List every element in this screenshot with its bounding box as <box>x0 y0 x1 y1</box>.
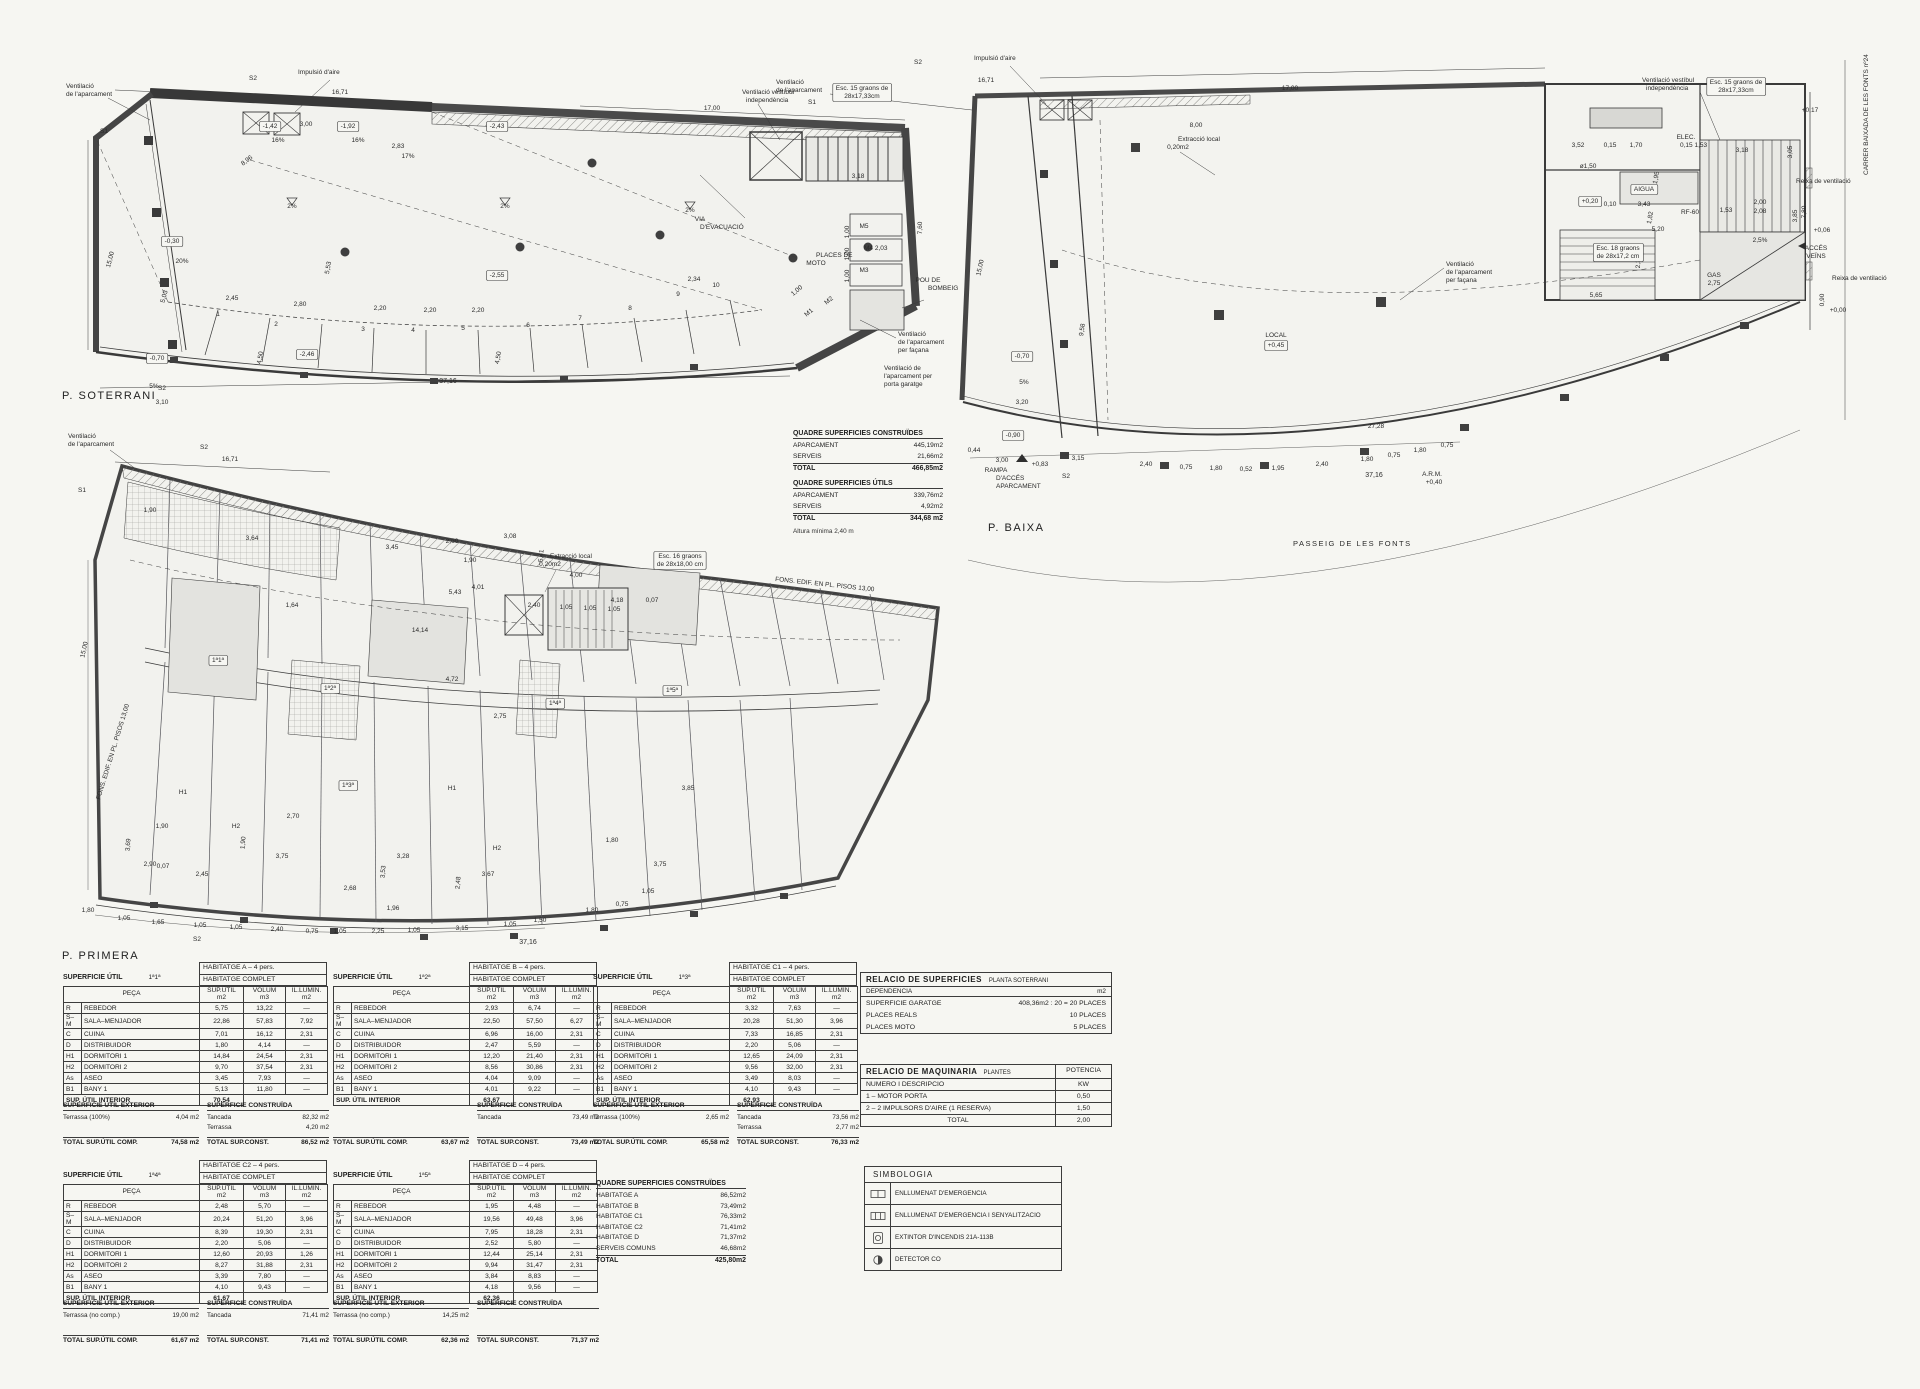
room-name: DISTRIBUIDOR <box>352 1040 470 1051</box>
annotation-text: 1,05 <box>504 921 517 928</box>
exterior-section: TOTAL SUP.ÚTIL COMP.63,67 m2 <box>333 1102 469 1146</box>
table-caption: SUPERFICIE ÚTIL1ª2ª <box>333 974 431 981</box>
annotation-text: 16,71 <box>978 77 995 84</box>
table-row: HABITATGE D71,37m2 <box>596 1233 746 1244</box>
room-code: R <box>64 1003 82 1014</box>
room-value: 7,93 <box>244 1073 286 1084</box>
table-row: H1DORMITORI 112,4425,142,31 <box>334 1249 598 1260</box>
room-name: SALA–MENJADOR <box>612 1014 730 1029</box>
room-value: 7,80 <box>244 1271 286 1282</box>
annotation-text: D'ACCÉS <box>996 473 1025 482</box>
room-value: — <box>556 1073 598 1084</box>
room-value: 4,10 <box>200 1282 244 1293</box>
annotation-text: 10 <box>712 282 720 289</box>
table-caption: SUPERFICIE ÚTIL1ª5ª <box>333 1172 431 1179</box>
exterior-section: SUPERFICIE ÚTIL EXTERIORTerrassa (100%)2… <box>593 1102 729 1146</box>
built-section: SUPERFICIE CONSTRUÏDATancada73,49 m2TOTA… <box>477 1102 599 1146</box>
annotation-text: 5,43 <box>449 589 462 596</box>
annotation-text: Ventilació <box>1446 261 1474 268</box>
annotation-text: 2 <box>274 321 278 328</box>
room-code: B1 <box>334 1084 352 1095</box>
column-header: PEÇA <box>334 987 470 1003</box>
caption-text: SUPERFICIE ÚTIL <box>333 1172 393 1179</box>
annotation-text: 1ª3ª <box>342 782 355 789</box>
annotation-text: 17,00 <box>704 105 721 112</box>
column-header: PEÇA <box>64 987 200 1003</box>
annotation-text: Ventilació vestíbul <box>1642 77 1695 84</box>
room-value: 7,95 <box>470 1227 514 1238</box>
annotation-text: 7 <box>578 315 582 322</box>
table-row: H1DORMITORI 114,8424,542,31 <box>64 1051 328 1062</box>
header-line1: PEÇA <box>336 991 467 998</box>
row-value: 86,52m2 <box>720 1191 746 1202</box>
annotation-text: 2,75 <box>1708 280 1721 287</box>
habitatge-complet: HABITATGE COMPLET <box>200 975 326 986</box>
habitatge-complet: HABITATGE COMPLET <box>730 975 856 986</box>
unit-id: 1ª2ª <box>419 974 431 981</box>
annotation-text: 1ª5ª <box>666 687 679 694</box>
annotation-text: de l'aparcament <box>1446 269 1492 276</box>
room-name: DORMITORI 1 <box>352 1051 470 1062</box>
table-caption: SUPERFICIE ÚTIL1ª3ª <box>593 974 691 981</box>
table-row: AsASEO3,848,83— <box>334 1271 598 1282</box>
annotation-text: 1,90 <box>239 836 247 850</box>
section-row: Terrassa (no comp.)19,00 m2 <box>63 1311 199 1321</box>
annotation-text: ACCÉS <box>1805 243 1828 252</box>
annotation-text: Ventilació <box>776 79 804 86</box>
table-row: S–MSALA–MENJADOR19,5649,483,96 <box>334 1212 598 1227</box>
title-subtext: PLANTA SOTERRANI <box>989 978 1048 984</box>
table-caption: SUPERFICIE ÚTIL1ª4ª <box>63 1172 161 1179</box>
annotation-text: 4 <box>411 327 415 334</box>
table-row: HABITATGE C271,41m2 <box>596 1223 746 1234</box>
table-row: HABITATGE A86,52m2 <box>596 1191 746 1202</box>
room-code: R <box>334 1201 352 1212</box>
room-value: 3,39 <box>200 1271 244 1282</box>
row-value: 339,76m2 <box>914 491 943 502</box>
row-value: 19,00 m2 <box>172 1311 199 1321</box>
annotation-text: H1 <box>179 789 188 796</box>
row-value: 0,50 <box>1055 1091 1111 1103</box>
table-row: APARCAMENT339,76m2 <box>793 491 943 502</box>
room-value: 2,31 <box>556 1029 598 1040</box>
header-row: PEÇASUP.ÚTILm2VOLUMm3IL.LUMIN.m2 <box>64 1185 328 1201</box>
annotation-text: 3,85 <box>1792 209 1799 222</box>
total-value: 344,68 m2 <box>910 515 943 522</box>
annotation-text: porta garatge <box>884 381 923 388</box>
column-header: SUP.ÚTILm2 <box>200 1185 244 1201</box>
annotation-text: BOMBEIG <box>928 285 958 292</box>
room-name: DORMITORI 1 <box>612 1051 730 1062</box>
room-value: 22,50 <box>470 1014 514 1029</box>
habitatge-name: HABITATGE D <box>473 1162 519 1169</box>
room-value: 3,96 <box>286 1212 328 1227</box>
column-header: PEÇA <box>334 1185 470 1201</box>
header-row: PEÇASUP.ÚTILm2VOLUMm3IL.LUMIN.m2 <box>64 987 328 1003</box>
room-name: CUINA <box>352 1227 470 1238</box>
table-row: B1BANY 14,189,56— <box>334 1282 598 1293</box>
annotation-text: 8,00 <box>1190 122 1203 129</box>
annotation-text: 0,07 <box>157 863 170 870</box>
room-name: REBEDOR <box>352 1201 470 1212</box>
row-label: PLACES MOTO <box>866 1024 915 1031</box>
annotation-text: GAS <box>1707 272 1721 279</box>
annotation-text: 3,53 <box>379 865 387 879</box>
row-label: APARCAMENT <box>793 441 838 452</box>
room-code: B1 <box>594 1084 612 1095</box>
annotation-text: 1,80 <box>82 907 95 914</box>
row-value: 71,41 m2 <box>302 1311 329 1321</box>
table-body: RREBEDOR2,936,74—S–MSALA–MENJADOR22,5057… <box>334 1003 598 1095</box>
annotation-text: 5% <box>1019 379 1029 386</box>
annotation-text: 2,70 <box>287 813 300 820</box>
annotation-text: 14,14 <box>412 627 429 634</box>
header-line1: PEÇA <box>66 991 197 998</box>
soterrani-area-tables: QUADRE SUPERFICIES CONSTRUÏDESAPARCAMENT… <box>793 430 943 535</box>
annotation-text: 1,90 <box>144 507 157 514</box>
room-value: 37,54 <box>244 1062 286 1073</box>
annotation-text: 2,25 <box>372 928 385 935</box>
annotation-text: 1,05 <box>584 605 597 612</box>
total-label: TOTAL SUP.CONST. <box>737 1139 799 1146</box>
room-value: 11,80 <box>244 1084 286 1095</box>
annotation-text: 1ª4ª <box>549 700 562 707</box>
room-value: 57,83 <box>244 1014 286 1029</box>
room-value: 7,01 <box>200 1029 244 1040</box>
title-text: RELACIO DE SUPERFICIES <box>866 975 982 984</box>
column-header: IL.LUMIN.m2 <box>286 987 328 1003</box>
habitatge-header: HABITATGE D – 4 pers.HABITATGE COMPLET <box>469 1160 597 1184</box>
table-row: CCUINA6,9616,002,31 <box>334 1029 598 1040</box>
room-name: DORMITORI 1 <box>352 1249 470 1260</box>
room-code: B1 <box>334 1282 352 1293</box>
header-row: PEÇASUP.ÚTILm2VOLUMm3IL.LUMIN.m2 <box>334 987 598 1003</box>
room-name: ASEO <box>82 1271 200 1282</box>
surface-table: PEÇASUP.ÚTILm2VOLUMm3IL.LUMIN.m2RREBEDOR… <box>593 986 858 1106</box>
room-name: REBEDOR <box>352 1003 470 1014</box>
header-row: PEÇASUP.ÚTILm2VOLUMm3IL.LUMIN.m2 <box>594 987 858 1003</box>
row-value: 408,36m2 : 20 = 20 PLACES <box>1019 1000 1106 1007</box>
row-value: 10 PLACES <box>1070 1012 1106 1019</box>
room-value: 2,31 <box>816 1062 858 1073</box>
annotation-text: 0,75 <box>1180 464 1193 471</box>
annotation-text: S2 <box>200 444 208 451</box>
row-label: HABITATGE A <box>596 1191 638 1202</box>
header-line2: m2 <box>472 1193 511 1200</box>
room-code: S–M <box>334 1014 352 1029</box>
total-value: 2,00 <box>1055 1115 1111 1126</box>
table-row: B1BANY 14,019,22— <box>334 1084 598 1095</box>
room-code: H2 <box>64 1062 82 1073</box>
table-total-row: TOTAL466,85m2 <box>793 463 943 472</box>
room-value: 6,96 <box>470 1029 514 1040</box>
habitatge-complet: HABITATGE COMPLET <box>470 1173 596 1184</box>
table-head: PEÇASUP.ÚTILm2VOLUMm3IL.LUMIN.m2 <box>64 987 328 1003</box>
room-name: DORMITORI 2 <box>82 1260 200 1271</box>
annotation-text: 3,45 <box>386 544 399 551</box>
annotation-text: 8 <box>628 305 632 312</box>
legend-label: DETECTOR CO <box>891 1256 1061 1263</box>
built-section: SUPERFICIE CONSTRUÏDATancada82,32 m2Terr… <box>207 1102 329 1146</box>
habitatge-complet: HABITATGE COMPLET <box>470 975 596 986</box>
header-line2: m2 <box>558 1193 595 1200</box>
room-value: 2,20 <box>730 1040 774 1051</box>
row-value: 21,66m2 <box>917 452 943 463</box>
row-label: HABITATGE C2 <box>596 1223 643 1234</box>
room-value: 2,52 <box>470 1238 514 1249</box>
room-value: — <box>286 1084 328 1095</box>
total-value: 71,41 m2 <box>301 1337 329 1344</box>
built-areas-summary-table: QUADRE SUPERFICIES CONSTRUÏDESHABITATGE … <box>596 1180 746 1264</box>
row-label: APARCAMENT <box>793 491 838 502</box>
row-value: 76,33m2 <box>720 1212 746 1223</box>
header-line2: m3 <box>246 995 283 1002</box>
simbologia-legend: SIMBOLOGIAENLLUMENAT D'EMERGENCIAENLLUME… <box>864 1166 1062 1271</box>
room-value: 5,06 <box>244 1238 286 1249</box>
room-value: 6,27 <box>556 1014 598 1029</box>
column-header: SUP.ÚTILm2 <box>470 987 514 1003</box>
total-label: TOTAL SUP.ÚTIL COMP. <box>63 1337 138 1344</box>
annotation-text: 3,75 <box>276 853 289 860</box>
room-value: 9,56 <box>730 1062 774 1073</box>
table-row: DDISTRIBUIDOR1,804,14— <box>64 1040 328 1051</box>
total-value: 63,67 m2 <box>441 1139 469 1146</box>
annotation-text: 1,70 <box>1630 142 1643 149</box>
annotation-text: Ventilació <box>898 331 926 338</box>
room-value: 1,80 <box>200 1040 244 1051</box>
annotation-text: 2,00 <box>1754 199 1767 206</box>
total-value: 71,37 m2 <box>571 1337 599 1344</box>
room-name: SALA–MENJADOR <box>82 1212 200 1227</box>
legend-label: ENLLUMENAT D'EMERGENCIA <box>891 1190 1061 1197</box>
room-value: 9,70 <box>200 1062 244 1073</box>
annotation-text: 4,72 <box>446 676 459 683</box>
annotation-text: 2,45 <box>196 871 209 878</box>
room-name: DISTRIBUIDOR <box>82 1040 200 1051</box>
annotation-text: de l'aparcament <box>898 339 944 346</box>
annotation-text: 1 <box>216 311 220 318</box>
room-value: — <box>556 1271 598 1282</box>
annotation-text: +0,45 <box>1268 342 1285 349</box>
annotation-text: 3,00 <box>300 121 313 128</box>
legend-row: ENLLUMENAT D'EMERGENCIA I SENYALITZACIO <box>865 1205 1061 1227</box>
annotation-text: -1,42 <box>263 123 278 130</box>
annotation-text: S1 <box>808 99 816 106</box>
table-total-row: TOTAL425,80m2 <box>596 1255 746 1264</box>
column-header: VOLUMm3 <box>774 987 816 1003</box>
room-value: 19,56 <box>470 1212 514 1227</box>
habitatge-header: HABITATGE A – 4 pers.HABITATGE COMPLET <box>199 962 327 986</box>
row-value: 73,49m2 <box>720 1202 746 1213</box>
room-value: 2,31 <box>556 1260 598 1271</box>
room-value: 51,30 <box>774 1014 816 1029</box>
annotation-text: Ventilació <box>66 83 94 90</box>
annotation-text: 2,20 <box>374 305 387 312</box>
annotation-text: 1,80 <box>586 907 599 914</box>
section-row: Tancada71,41 m2 <box>207 1311 329 1321</box>
annotation-text: H1 <box>448 785 457 792</box>
annotation-text: per façana <box>898 347 929 354</box>
total-label: TOTAL SUP.ÚTIL COMP. <box>593 1139 668 1146</box>
room-value: 51,20 <box>244 1212 286 1227</box>
table-row: S–MSALA–MENJADOR22,8657,837,92 <box>64 1014 328 1029</box>
annotation-text: 2,48 <box>454 876 462 890</box>
annotation-text: 6 <box>526 322 530 329</box>
room-value: 3,45 <box>200 1073 244 1084</box>
room-code: C <box>64 1227 82 1238</box>
row-value: 4,20 m2 <box>306 1123 329 1133</box>
annotation-text: 0,44 <box>968 447 981 454</box>
room-code: B1 <box>64 1282 82 1293</box>
annotation-text: 0,75 <box>616 901 629 908</box>
annotation-text: S1 <box>78 487 86 494</box>
built-section: SUPERFICIE CONSTRUÏDATOTAL SUP.CONST.71,… <box>477 1300 599 1344</box>
row-label: Terrassa <box>207 1123 232 1133</box>
legend-label: EXTINTOR D'INCENDIS 21A-113B <box>891 1234 1061 1241</box>
annotation-text: 3,20 <box>1016 399 1029 406</box>
total-label: TOTAL <box>861 1115 1055 1126</box>
annotation-text: VEÏNS <box>1806 252 1826 260</box>
row-value: 71,37m2 <box>720 1233 746 1244</box>
room-value: 2,48 <box>200 1201 244 1212</box>
surface-table: PEÇASUP.ÚTILm2VOLUMm3IL.LUMIN.m2RREBEDOR… <box>333 1184 598 1304</box>
room-value: 24,09 <box>774 1051 816 1062</box>
room-value: 31,47 <box>514 1260 556 1271</box>
room-name: DORMITORI 2 <box>352 1062 470 1073</box>
table-footer-sections: SUPERFICIE ÚTIL EXTERIORTerrassa (100%)2… <box>593 1102 859 1146</box>
section-title: SUPERFICIE CONSTRUÏDA <box>737 1102 859 1111</box>
room-value: 4,04 <box>470 1073 514 1084</box>
room-value: 20,28 <box>730 1014 774 1029</box>
room-code: H2 <box>334 1260 352 1271</box>
row-value: 71,41m2 <box>720 1223 746 1234</box>
annotation-text: POU DE <box>916 277 942 284</box>
habitatge-name-row: HABITATGE D – 4 pers. <box>470 1161 596 1173</box>
annotation-text: -0,90 <box>1006 432 1021 439</box>
annotation-text: 37,16 <box>519 939 537 946</box>
section-row: Tancada73,56 m2 <box>737 1113 859 1123</box>
table-row: SERVEIS4,92m2 <box>793 502 943 513</box>
room-code: S–M <box>64 1212 82 1227</box>
table-row: RREBEDOR2,936,74— <box>334 1003 598 1014</box>
header-line2: m2 <box>558 995 595 1002</box>
annotation-text: 3,43 <box>1638 201 1651 208</box>
room-value: — <box>286 1271 328 1282</box>
annotation-text: 5,20 <box>1652 226 1665 233</box>
annotation-text: 2,90 <box>144 861 157 868</box>
column-header: IL.LUMIN.m2 <box>286 1185 328 1201</box>
column-header: VOLUMm3 <box>514 987 556 1003</box>
table-head: PEÇASUP.ÚTILm2VOLUMm3IL.LUMIN.m2 <box>594 987 858 1003</box>
room-code: H1 <box>334 1249 352 1260</box>
room-value: 12,65 <box>730 1051 774 1062</box>
annotation-text: 3,64 <box>246 535 259 542</box>
annotation-text: -0,70 <box>1015 353 1030 360</box>
annotation-text: 2,60 <box>446 538 459 545</box>
row-label: Tancada <box>207 1311 231 1321</box>
room-name: REBEDOR <box>82 1003 200 1014</box>
column-header: m2 <box>1097 988 1106 995</box>
section-row: Terrassa (100%)4,04 m2 <box>63 1113 199 1123</box>
column-header: SUP.ÚTILm2 <box>470 1185 514 1201</box>
room-value: 18,28 <box>514 1227 556 1238</box>
room-name: REBEDOR <box>82 1201 200 1212</box>
column-header: KW <box>1055 1079 1111 1091</box>
room-value: 2,47 <box>470 1040 514 1051</box>
caption-text: SUPERFICIE ÚTIL <box>593 974 653 981</box>
annotation-text: 16% <box>271 137 284 144</box>
room-value: — <box>816 1084 858 1095</box>
total-label: TOTAL SUP.CONST. <box>477 1337 539 1344</box>
annotation-text: 1,05 <box>408 927 421 934</box>
table-row: AsASEO3,457,93— <box>64 1073 328 1084</box>
table-row: RREBEDOR3,327,63— <box>594 1003 858 1014</box>
row-label: SERVEIS <box>793 452 821 463</box>
annotation-text: 2,40 <box>1140 461 1153 468</box>
room-value: 5,75 <box>200 1003 244 1014</box>
header-line2: m2 <box>202 1193 241 1200</box>
annotation-text: -2,46 <box>300 351 315 358</box>
quadre-construides: QUADRE SUPERFICIES CONSTRUÏDESAPARCAMENT… <box>793 430 943 472</box>
room-code: As <box>594 1073 612 1084</box>
co-detector-icon <box>865 1249 891 1270</box>
header-line2: m2 <box>288 995 325 1002</box>
room-value: 19,30 <box>244 1227 286 1238</box>
row-value: 1,50 <box>1055 1103 1111 1115</box>
emergency-light-icon <box>865 1183 891 1204</box>
section-total: TOTAL SUP.CONST.71,37 m2 <box>477 1335 599 1344</box>
row-label: Terrassa (no comp.) <box>63 1311 120 1321</box>
annotation-text: 3,75 <box>654 861 667 868</box>
room-name: CUINA <box>352 1029 470 1040</box>
room-code: As <box>64 1271 82 1282</box>
room-value: 9,09 <box>514 1073 556 1084</box>
room-name: DISTRIBUIDOR <box>352 1238 470 1249</box>
table-row: B1BANY 14,109,43— <box>594 1084 858 1095</box>
table-body: RREBEDOR2,485,70—S–MSALA–MENJADOR20,2451… <box>64 1201 328 1293</box>
annotation-text: 1,05 <box>608 606 621 613</box>
table-body: RREBEDOR3,327,63—S–MSALA–MENJADOR20,2851… <box>594 1003 858 1095</box>
header-line2: m3 <box>516 1193 553 1200</box>
annotation-text: S1 <box>100 128 108 135</box>
room-name: ASEO <box>352 1073 470 1084</box>
room-value: 1,26 <box>286 1249 328 1260</box>
table-row: AsASEO3,397,80— <box>64 1271 328 1282</box>
room-code: S–M <box>64 1014 82 1029</box>
header-line2: m3 <box>246 1193 283 1200</box>
annotation-text: MOTO <box>806 260 825 267</box>
annotation-text: Impulsió d'aire <box>974 55 1016 62</box>
room-name: CUINA <box>82 1029 200 1040</box>
table-row: H2DORMITORI 29,5632,002,31 <box>594 1062 858 1073</box>
section-title: SUPERFICIE CONSTRUÏDA <box>477 1102 599 1111</box>
room-value: 32,00 <box>774 1062 816 1073</box>
header-line2: m2 <box>818 995 855 1002</box>
room-code: R <box>334 1003 352 1014</box>
header-line1: PEÇA <box>596 991 727 998</box>
total-label: TOTAL SUP.CONST. <box>477 1139 539 1146</box>
room-value: 16,12 <box>244 1029 286 1040</box>
habitatge-header: HABITATGE C2 – 4 pers.HABITATGE COMPLET <box>199 1160 327 1184</box>
annotation-text: 2,20 <box>424 307 437 314</box>
annotation-text: 0,75 <box>1388 452 1401 459</box>
room-value: 14,84 <box>200 1051 244 1062</box>
annotation-text: 2,80 <box>294 301 307 308</box>
room-name: DISTRIBUIDOR <box>612 1040 730 1051</box>
annotation-text: S2 <box>1062 473 1070 480</box>
room-code: C <box>64 1029 82 1040</box>
room-value: 8,27 <box>200 1260 244 1271</box>
